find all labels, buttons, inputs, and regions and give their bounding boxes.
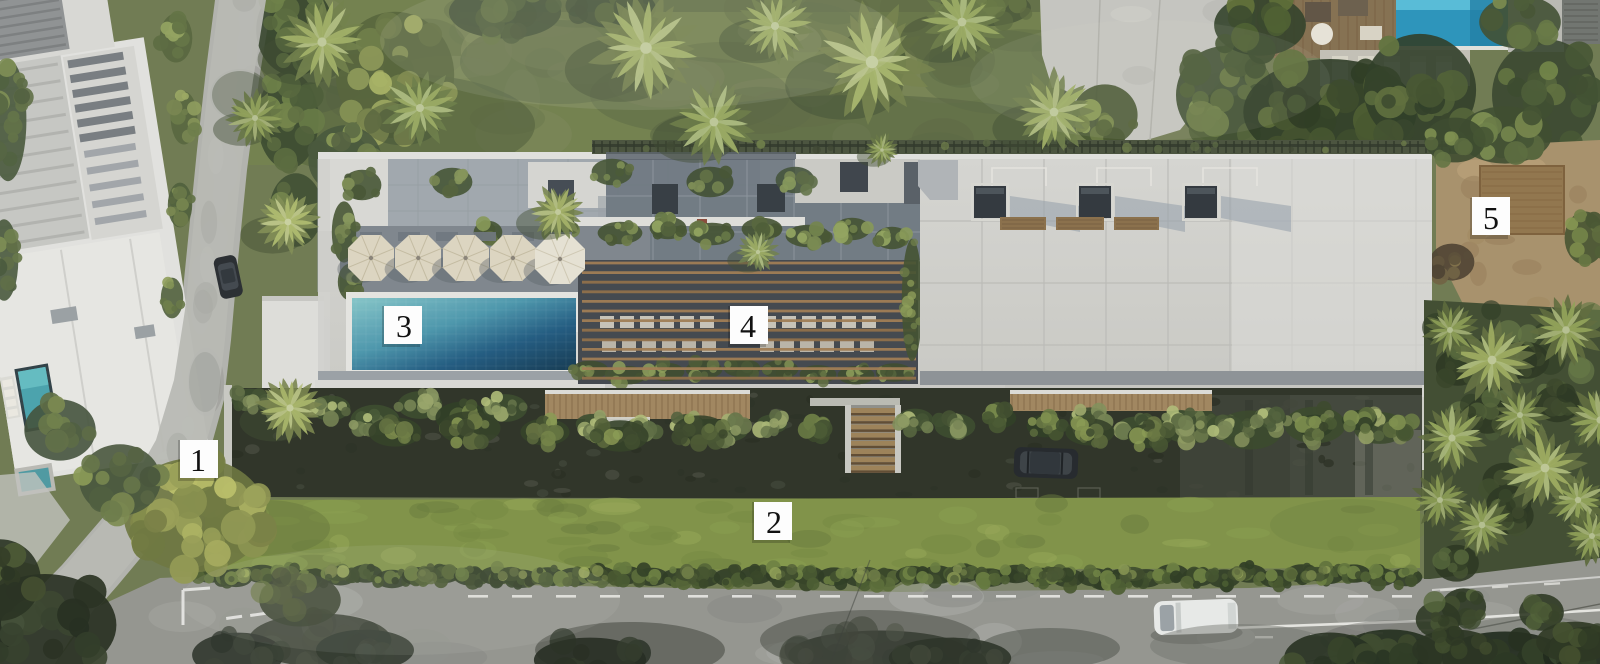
svg-text:4: 4 (740, 308, 756, 344)
svg-text:1: 1 (190, 442, 206, 478)
svg-text:2: 2 (766, 504, 782, 540)
svg-text:3: 3 (396, 308, 412, 344)
svg-text:5: 5 (1483, 200, 1499, 236)
